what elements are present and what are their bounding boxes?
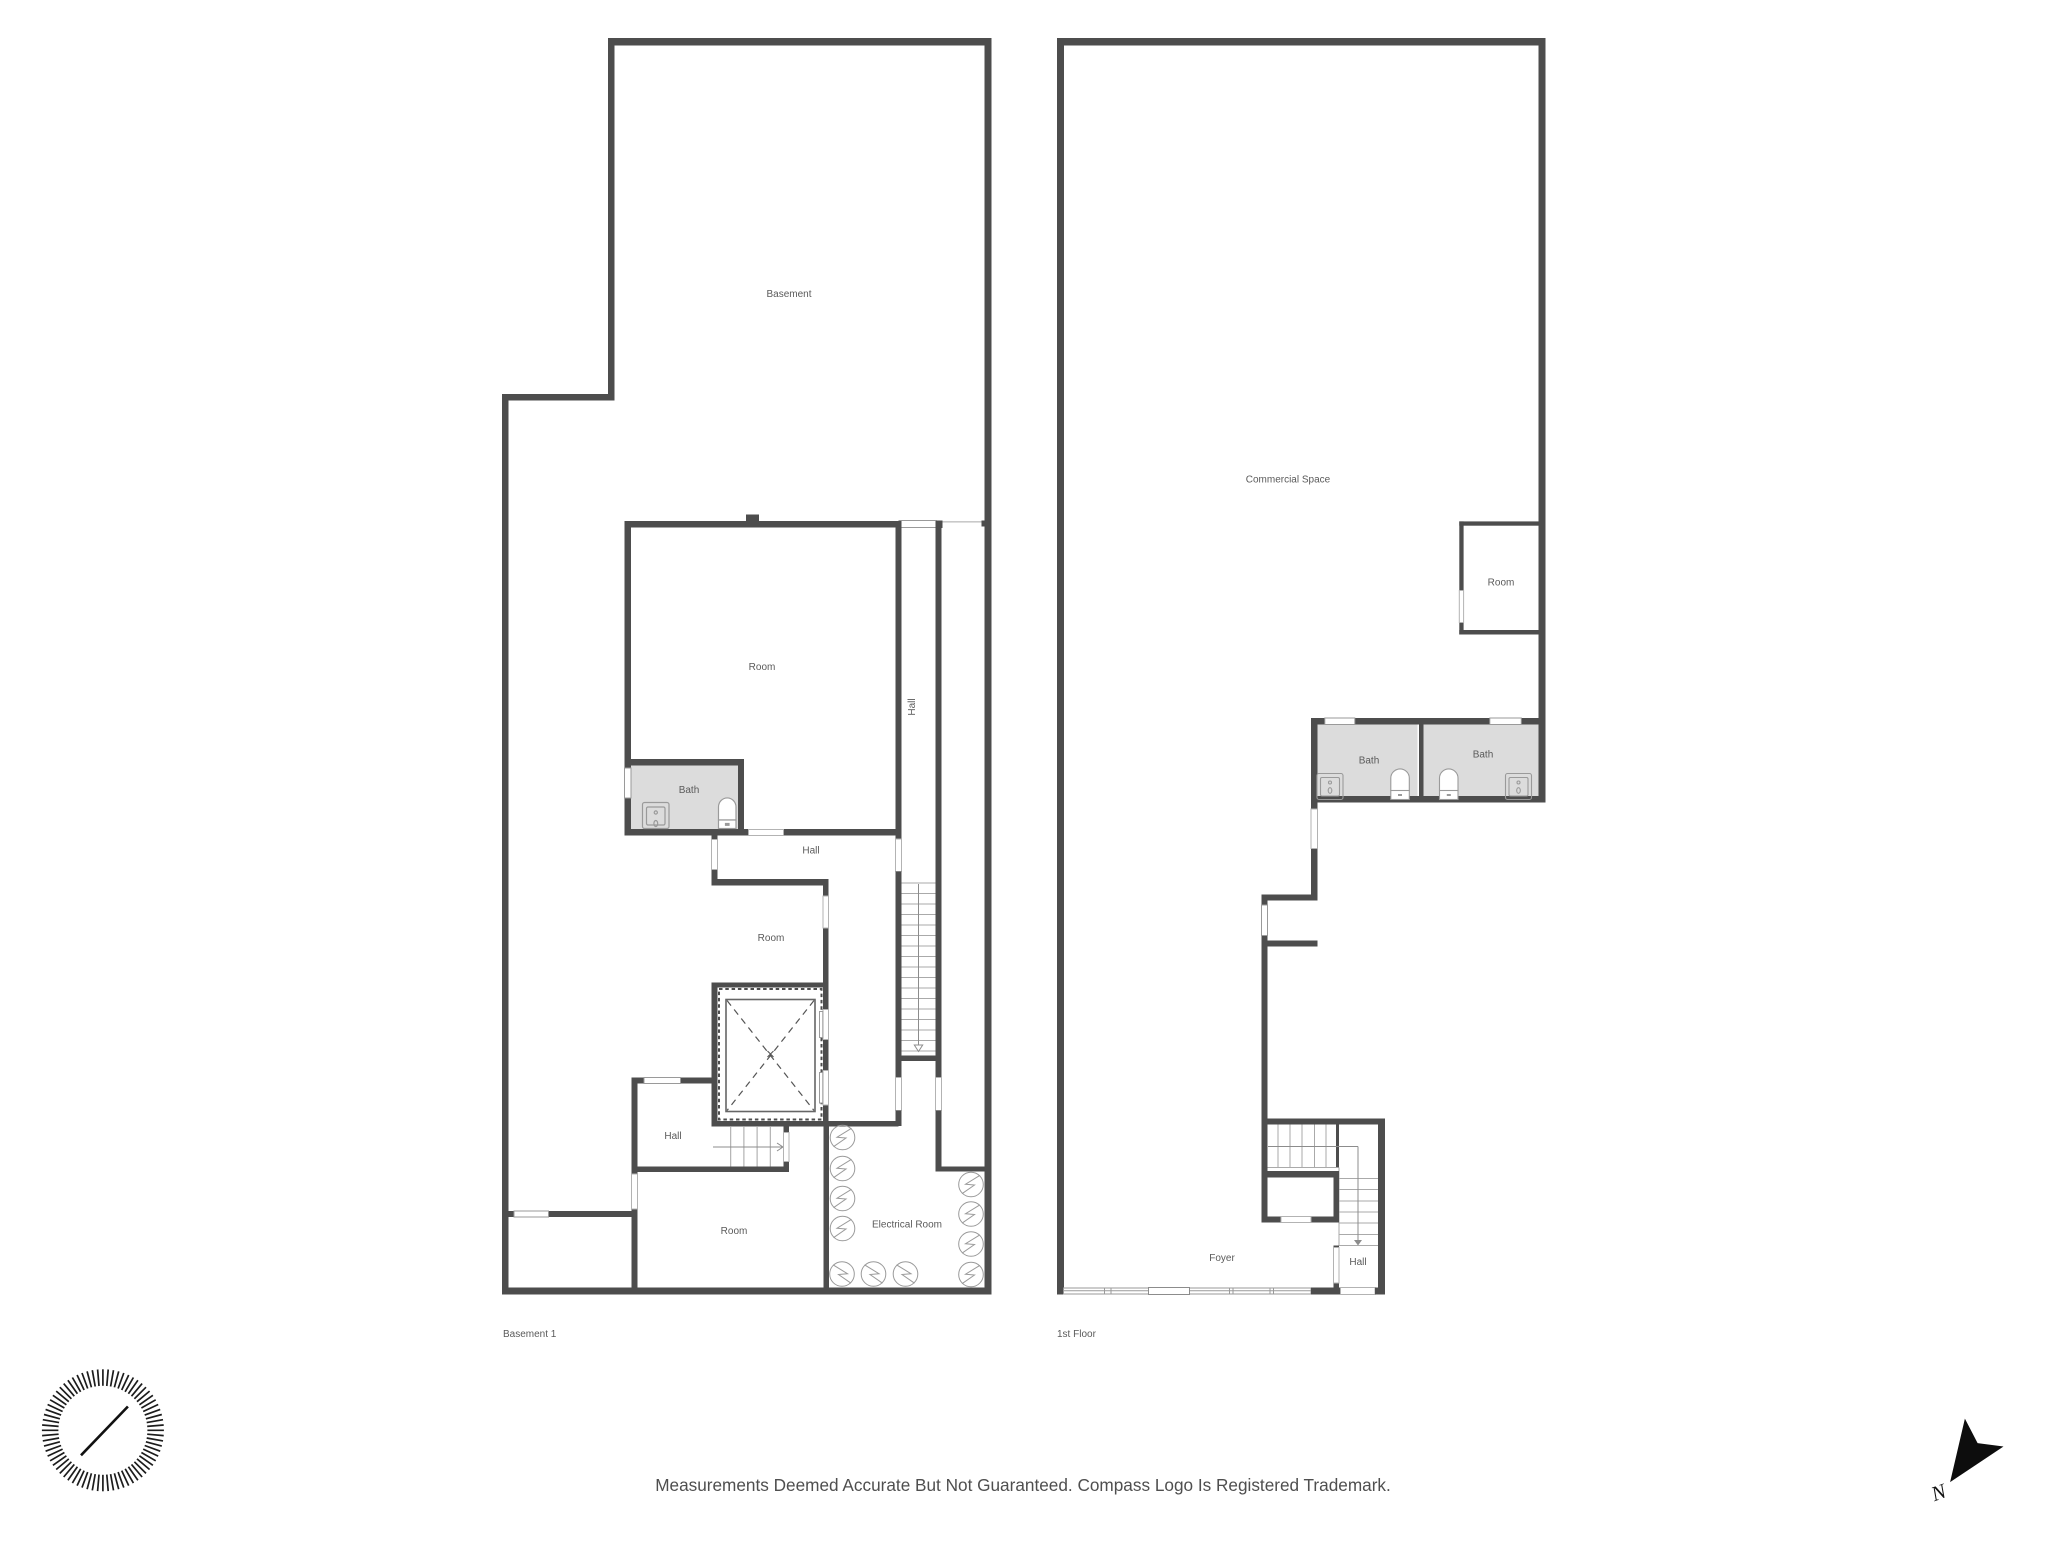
svg-text:Hall: Hall <box>1349 1257 1366 1268</box>
svg-text:Bath: Bath <box>1473 750 1494 761</box>
svg-text:N: N <box>1927 1478 1950 1506</box>
svg-text:Bath: Bath <box>679 785 700 796</box>
svg-text:Measurements Deemed Accurate B: Measurements Deemed Accurate But Not Gua… <box>655 1475 1391 1495</box>
svg-text:Hall: Hall <box>802 846 819 857</box>
svg-text:Room: Room <box>721 1226 748 1237</box>
svg-text:Electrical Room: Electrical Room <box>872 1220 942 1231</box>
svg-text:Commercial Space: Commercial Space <box>1246 475 1331 486</box>
svg-text:Foyer: Foyer <box>1209 1253 1235 1264</box>
svg-text:Room: Room <box>1488 578 1515 589</box>
svg-text:Basement: Basement <box>766 289 811 300</box>
svg-text:1st Floor: 1st Floor <box>1057 1329 1097 1340</box>
svg-text:Basement 1: Basement 1 <box>503 1329 557 1340</box>
svg-text:Room: Room <box>758 933 785 944</box>
svg-text:Bath: Bath <box>1359 756 1380 767</box>
svg-text:Hall: Hall <box>907 698 918 715</box>
svg-text:Room: Room <box>749 662 776 673</box>
svg-text:Hall: Hall <box>664 1131 681 1142</box>
